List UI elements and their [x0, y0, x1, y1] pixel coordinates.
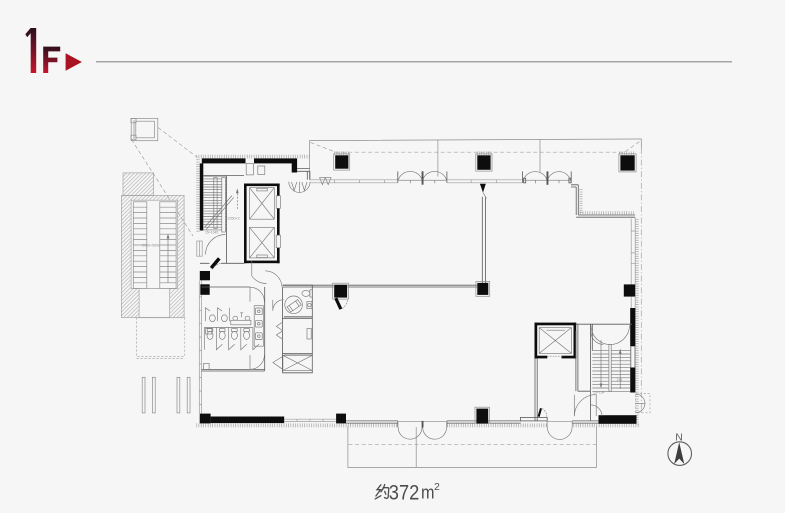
svg-text:m: m — [421, 483, 435, 503]
svg-text:15+1045: 15+1045 — [205, 231, 218, 235]
svg-text:134: 134 — [617, 378, 623, 382]
svg-text:13+134: 13+134 — [593, 390, 605, 394]
svg-text:372: 372 — [389, 481, 420, 504]
svg-text:2350×2: 2350×2 — [228, 217, 240, 221]
svg-text:2: 2 — [434, 481, 440, 493]
svg-text:N: N — [675, 431, 683, 443]
svg-text:2930×5698: 2930×5698 — [142, 244, 160, 248]
